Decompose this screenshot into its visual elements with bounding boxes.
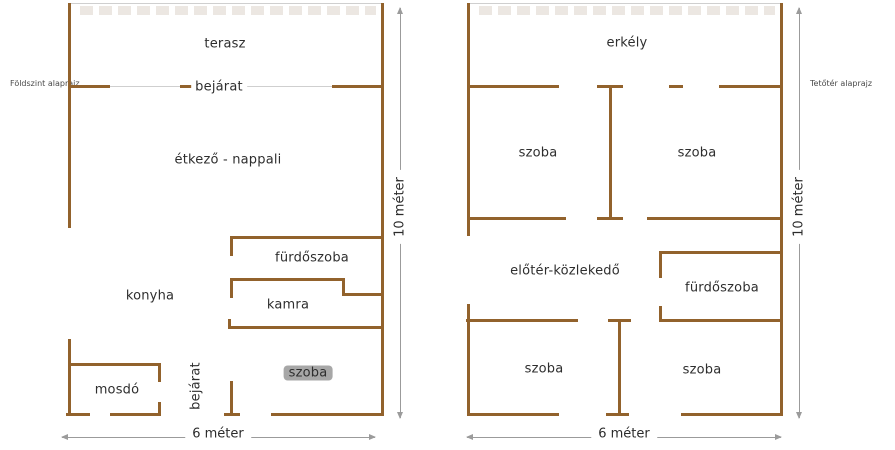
- wall-segment: [230, 236, 381, 239]
- arrowhead-left: [61, 434, 68, 440]
- arrowhead-right: [369, 434, 376, 440]
- wall-segment: [230, 278, 233, 298]
- room-label-mosdo: mosdó: [95, 383, 140, 398]
- wall-segment: [659, 251, 662, 278]
- wall-segment: [230, 278, 344, 281]
- thin-line: [68, 3, 384, 4]
- room-label-konyha: konyha: [126, 289, 174, 304]
- wall-segment: [659, 251, 781, 254]
- wall-segment: [68, 339, 71, 416]
- room-label-bejarat-bottom: bejárat: [189, 362, 204, 410]
- railing-hatch: [80, 6, 376, 15]
- room-label-szoba-top-right: szoba: [678, 146, 717, 161]
- wall-segment: [228, 326, 384, 329]
- arrowhead-up: [796, 7, 802, 14]
- wall-segment: [609, 85, 612, 219]
- arrowhead-right: [775, 434, 782, 440]
- wall-segment: [659, 319, 781, 322]
- dimension-label: 6 méter: [591, 427, 657, 442]
- wall-segment: [110, 413, 160, 416]
- wall-segment: [467, 304, 470, 416]
- wall-segment: [342, 293, 383, 296]
- room-label-furdoszoba: fürdőszoba: [685, 281, 759, 296]
- wall-segment: [158, 363, 161, 382]
- wall-segment: [466, 319, 578, 322]
- room-label-szoba-top-left: szoba: [519, 146, 558, 161]
- arrowhead-up: [397, 7, 403, 14]
- wall-segment: [467, 217, 566, 220]
- dimension-label: 10 méter: [792, 170, 807, 244]
- room-label-szoba-highlighted: szoba: [284, 366, 333, 381]
- plan-title-tetoter: Tetőtér alaprajz: [810, 79, 872, 88]
- room-label-furdoszoba: fürdőszoba: [275, 251, 349, 266]
- room-label-etkezo-nappali: étkező - nappali: [175, 153, 282, 168]
- thin-line: [467, 3, 782, 4]
- wall-segment: [342, 278, 345, 296]
- room-label-bejarat-top: bejárat: [191, 80, 247, 95]
- wall-segment: [467, 85, 559, 88]
- wall-segment: [467, 413, 559, 416]
- wall-segment: [618, 319, 621, 416]
- railing-hatch: [479, 6, 775, 15]
- wall-segment: [669, 85, 683, 88]
- wall-segment: [467, 3, 470, 236]
- wall-segment: [332, 85, 382, 88]
- wall-segment: [68, 363, 160, 366]
- wall-segment: [659, 306, 662, 322]
- wall-segment: [780, 3, 783, 416]
- room-label-erkely: erkély: [607, 36, 648, 51]
- wall-segment: [228, 319, 231, 329]
- room-label-kamra: kamra: [267, 298, 309, 313]
- wall-segment: [381, 3, 384, 416]
- arrowhead-left: [466, 434, 473, 440]
- floor-plan-canvas: Földszint alaprajzteraszbejáratétkező - …: [0, 0, 895, 450]
- wall-segment: [271, 413, 384, 416]
- room-label-szoba-bottom-left: szoba: [525, 362, 564, 377]
- wall-segment: [647, 217, 782, 220]
- room-label-szoba-bottom-right: szoba: [683, 363, 722, 378]
- room-label-eloter-kozlekedo: előtér-közlekedő: [510, 264, 620, 279]
- wall-segment: [230, 381, 233, 416]
- wall-segment: [230, 236, 233, 256]
- wall-segment: [681, 413, 782, 416]
- wall-segment: [719, 85, 782, 88]
- dimension-label: 6 méter: [185, 427, 251, 442]
- arrowhead-down: [397, 412, 403, 419]
- arrowhead-down: [796, 412, 802, 419]
- wall-segment: [68, 85, 110, 88]
- room-label-terasz: terasz: [204, 37, 245, 52]
- dimension-label: 10 méter: [393, 170, 408, 244]
- wall-segment: [158, 402, 161, 416]
- wall-segment: [68, 3, 71, 228]
